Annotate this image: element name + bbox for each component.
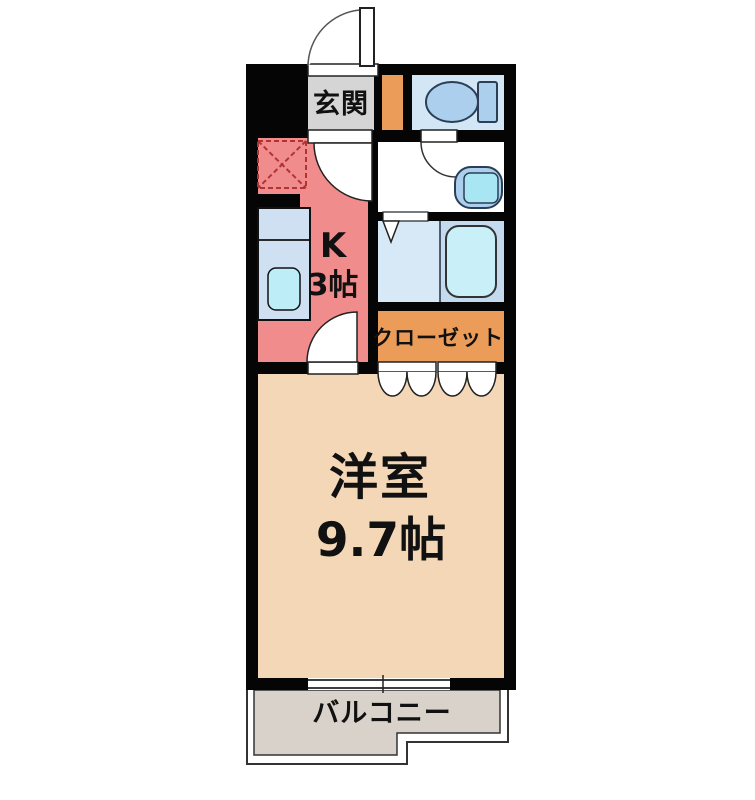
- label-kitchen-type: K: [320, 226, 348, 266]
- wall-washroom-bath-right: [428, 212, 516, 221]
- label-main-room: 洋室: [329, 449, 431, 506]
- wall-closet-room-right: [496, 362, 516, 374]
- bathroom-threshold: [383, 212, 428, 221]
- label-main-room-area: 9.7帖: [316, 513, 446, 568]
- wall-left: [246, 64, 258, 690]
- wall-storage-toilet-divider: [403, 64, 412, 132]
- genkan-kitchen-threshold: [308, 130, 372, 143]
- wall-kitchen-room-mid: [358, 362, 378, 374]
- floor-plan-drawing: 玄関 K 3帖 クローゼット 洋室 9.7帖 バルコニー: [0, 0, 755, 800]
- bathtub-icon: [446, 226, 496, 297]
- wall-top-right: [378, 64, 516, 75]
- toilet-icon: [426, 82, 497, 122]
- kitchen-sink-icon: [268, 268, 300, 310]
- entry-door-swing-icon: [308, 10, 360, 66]
- wall-toilet-bottom-left: [372, 130, 421, 142]
- wall-bottom-left: [246, 678, 308, 690]
- label-genkan: 玄関: [313, 88, 369, 120]
- label-closet: クローゼット: [372, 326, 504, 350]
- wall-kitchen-room-left: [246, 362, 308, 374]
- wall-toilet-bottom-right: [457, 130, 516, 142]
- label-kitchen-area: 3帖: [308, 268, 359, 303]
- closet-threshold-left: [378, 362, 436, 372]
- wall-washroom-bath-left: [378, 212, 383, 221]
- closet-threshold-right: [438, 362, 496, 372]
- wall-kitchen-stub: [246, 194, 300, 208]
- wall-genkan-block: [246, 64, 308, 138]
- wall-bath-closet: [378, 302, 516, 311]
- entry-door-leaf: [360, 8, 374, 66]
- wall-bottom-right: [450, 678, 516, 690]
- label-balcony: バルコニー: [312, 698, 451, 729]
- kitchen-room-threshold: [308, 362, 358, 374]
- wall-right: [504, 64, 516, 690]
- washroom-threshold: [421, 130, 457, 142]
- floor-plan: 玄関 K 3帖 クローゼット 洋室 9.7帖 バルコニー: [0, 0, 755, 800]
- entrance-storage-strip: [382, 70, 403, 132]
- wash-basin-icon: [455, 167, 502, 208]
- kitchen-counter-icon: [258, 208, 310, 320]
